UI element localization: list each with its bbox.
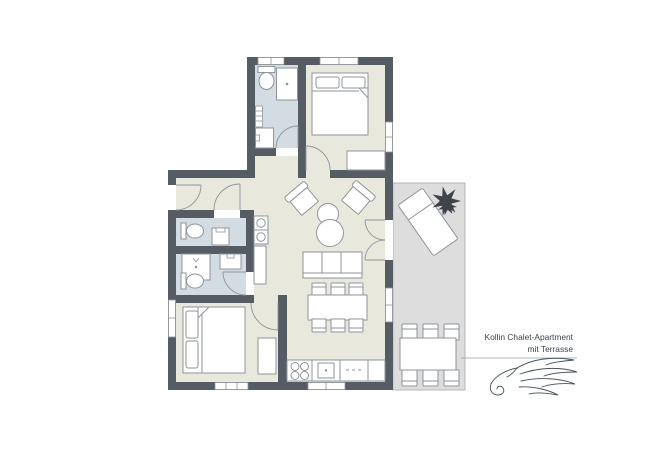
kitchen-sink-icon <box>318 363 334 378</box>
chair-icon <box>349 319 363 332</box>
chair-icon <box>349 283 363 296</box>
window <box>320 58 358 65</box>
sofa-icon <box>303 252 362 278</box>
pillow-icon <box>342 77 365 88</box>
window <box>169 300 176 337</box>
sink-icon <box>220 254 241 269</box>
toilet-icon <box>181 223 204 239</box>
appliance-column-icon <box>254 216 268 244</box>
window <box>308 383 345 390</box>
pillow-icon <box>186 311 198 338</box>
terrace-table <box>400 338 456 370</box>
entrance-door-opening <box>168 185 176 210</box>
sink-icon <box>256 128 274 148</box>
wc-door-opening <box>214 210 240 218</box>
radiator-icon <box>256 106 263 127</box>
toilet-icon <box>258 67 275 90</box>
plan-title-line2: mit Terrasse <box>528 344 574 354</box>
chair-icon <box>331 283 345 296</box>
chair-icon <box>331 319 345 332</box>
pillow-icon <box>186 341 198 368</box>
terrace-chair <box>444 370 459 386</box>
pillow-icon <box>316 77 339 88</box>
caption-block: Kollin Chalet-Apartment mit Terrasse <box>461 332 577 395</box>
floor-plan-page: Kollin Chalet-Apartment mit Terrasse <box>0 0 650 450</box>
toilet-icon <box>181 273 204 289</box>
window <box>215 383 248 390</box>
wardrobe-icon <box>258 338 276 374</box>
window <box>258 58 284 65</box>
dining-set <box>308 283 367 332</box>
window <box>386 288 393 322</box>
dining-table-icon <box>308 295 367 320</box>
wardrobe-icon <box>347 151 385 170</box>
terrace <box>393 183 465 390</box>
terrace-chair <box>423 370 438 386</box>
terrace-door-opening <box>385 220 393 260</box>
chair-icon <box>312 283 326 296</box>
double-bed-icon <box>183 307 245 373</box>
double-bed-icon <box>312 73 368 135</box>
terrace-dining-set <box>400 324 459 386</box>
sideboard-icon <box>254 246 266 284</box>
plan-title-line1: Kollin Chalet-Apartment <box>485 332 574 342</box>
floor-plan-svg: Kollin Chalet-Apartment mit Terrasse <box>0 0 650 450</box>
round-coffee-table-icon <box>317 220 344 247</box>
kitchen <box>287 360 385 381</box>
washer-icon <box>212 228 229 245</box>
chair-icon <box>312 319 326 332</box>
shower-icon <box>277 68 298 100</box>
bathroom-top-door-opening <box>276 148 298 156</box>
shower-room-door-opening <box>246 272 254 295</box>
window <box>386 122 393 152</box>
terrace-chair <box>402 370 417 386</box>
horse-logo-icon <box>490 358 577 395</box>
